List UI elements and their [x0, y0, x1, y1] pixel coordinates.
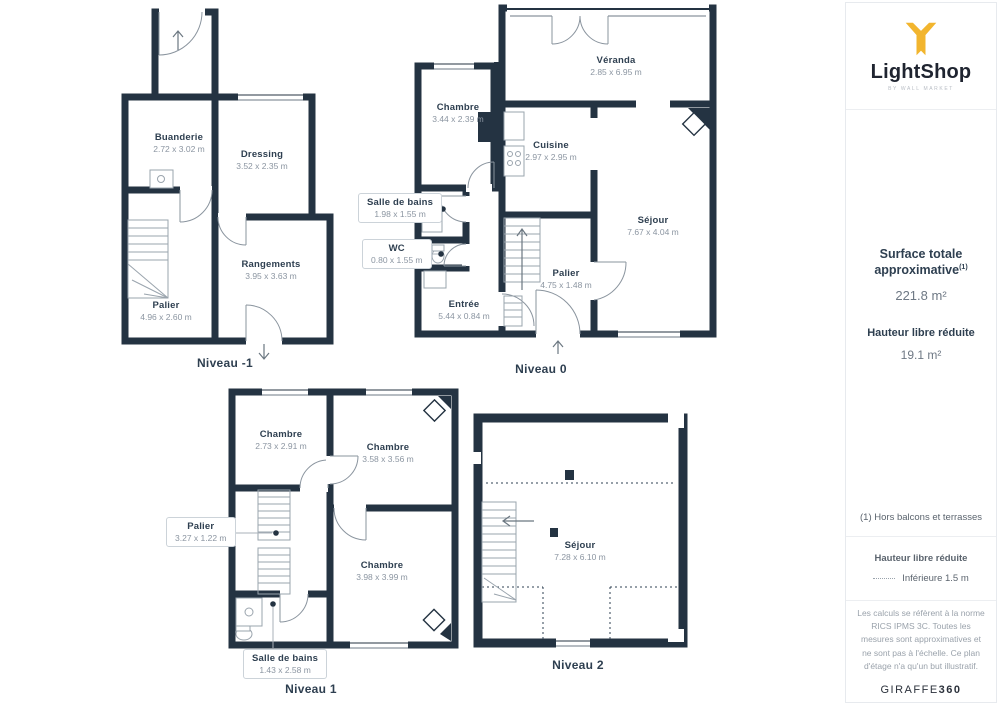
level-caption-n1: Niveau 1 [285, 682, 337, 696]
reduced-height-value: 19.1 m² [901, 348, 942, 362]
legend-block: Hauteur libre réduite Inférieure 1.5 m [846, 537, 996, 601]
room-label-palier-n1: Palier 3.27 x 1.22 m [166, 517, 236, 547]
room-label-buanderie: Buanderie 2.72 x 3.02 m [153, 132, 205, 154]
level-caption-m1: Niveau -1 [197, 356, 253, 370]
disclaimer-text: Les calculs se réfèrent à la norme RICS … [857, 607, 985, 673]
room-label-chambre3-n1: Chambre 3.98 x 3.99 m [356, 560, 408, 582]
room-label-sdb-n1: Salle de bains 1.43 x 2.58 m [243, 649, 327, 679]
reduced-height-title: Hauteur libre réduite [867, 327, 975, 339]
room-label-sdb-n0: Salle de bains 1.98 x 1.55 m [358, 193, 442, 223]
room-label-chambre-n0: Chambre 3.44 x 2.39 m [432, 102, 484, 124]
room-label-sejour-n2: Séjour 7.28 x 6.10 m [554, 540, 606, 562]
room-label-palier-m1: Palier 4.96 x 2.60 m [140, 300, 192, 322]
room-label-sejour-n0: Séjour 7.67 x 4.04 m [627, 215, 679, 237]
legend-item-label: Inférieure 1.5 m [902, 573, 969, 584]
room-label-palier-n0: Palier 4.75 x 1.48 m [540, 268, 592, 290]
surface-value: 221.8 m² [895, 288, 946, 303]
surface-title: Surface totale approximative(1) [854, 247, 988, 278]
logo-block: LightShop BY WALL MARKET [846, 3, 996, 110]
brand-tagline: BY WALL MARKET [888, 86, 954, 92]
level-caption-n2: Niveau 2 [552, 658, 604, 672]
sidebar: LightShop BY WALL MARKET Surface totale … [845, 2, 997, 703]
room-label-cuisine: Cuisine 2.97 x 2.95 m [525, 140, 577, 162]
legend-row: Inférieure 1.5 m [873, 573, 969, 584]
dotted-line-icon [873, 578, 895, 579]
lightshop-logo-icon [899, 21, 943, 57]
level-caption-n0: Niveau 0 [515, 362, 567, 376]
brand-name: LightShop [871, 61, 972, 84]
room-label-wc: WC 0.80 x 1.55 m [362, 239, 432, 269]
room-label-chambre2-n1: Chambre 3.58 x 3.56 m [362, 442, 414, 464]
footnote: (1) Hors balcons et terrasses [846, 499, 996, 537]
room-label-chambre1-n1: Chambre 2.73 x 2.91 m [255, 429, 307, 451]
giraffe360-brand: GIRAFFE360 [880, 684, 961, 696]
surface-info-block: Surface totale approximative(1) 221.8 m²… [846, 110, 996, 498]
room-label-rangements: Rangements 3.95 x 3.63 m [241, 259, 300, 281]
legend-title: Hauteur libre réduite [875, 553, 968, 564]
room-label-entree: Entrée 5.44 x 0.84 m [438, 299, 490, 321]
legal-block: Les calculs se réfèrent à la norme RICS … [846, 601, 996, 702]
room-label-dressing: Dressing 3.52 x 2.35 m [236, 149, 288, 171]
room-label-veranda: Véranda 2.85 x 6.95 m [590, 55, 642, 77]
